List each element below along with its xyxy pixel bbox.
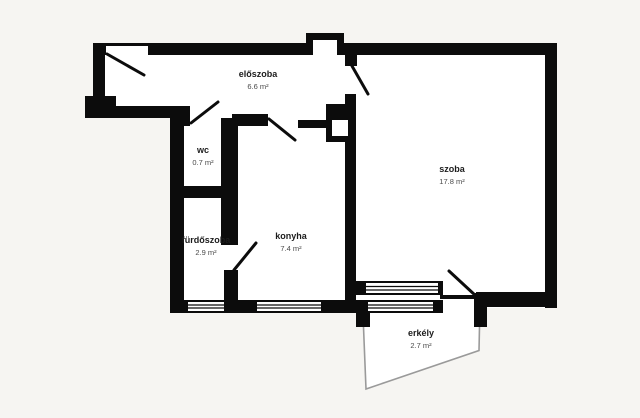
wall-segment xyxy=(170,112,184,313)
wall-segment xyxy=(337,33,344,55)
wall-segment xyxy=(298,120,328,128)
floor-plan-canvas: előszoba 6.6 m² wc 0.7 m² fürdőszoba 2.9… xyxy=(0,0,640,418)
szoba-area: 17.8 m² xyxy=(439,177,465,186)
shaft xyxy=(326,104,356,142)
balcony-pillar-left xyxy=(356,300,370,327)
floor-szoba xyxy=(345,43,557,308)
balcony-threshold xyxy=(440,295,478,299)
furdoszoba-label: fürdőszoba xyxy=(182,235,231,245)
eloszoba-area: 6.6 m² xyxy=(247,82,269,91)
niche-interior xyxy=(313,40,337,55)
erkely-label: erkély xyxy=(408,328,434,338)
wall-segment xyxy=(545,43,557,308)
wall-segment xyxy=(221,118,238,245)
floor-erkely xyxy=(363,313,480,389)
balcony-pillar-right xyxy=(474,293,487,327)
top-niche xyxy=(306,33,344,55)
wall-segment xyxy=(232,114,268,126)
erkely-area: 2.7 m² xyxy=(410,341,432,350)
window-room-balcony-outer xyxy=(366,283,438,293)
balcony-door-gap xyxy=(443,300,474,313)
floor-areas xyxy=(93,43,557,389)
eloszoba-label: előszoba xyxy=(239,69,279,79)
wc-area: 0.7 m² xyxy=(192,158,214,167)
entry-door-gap xyxy=(106,46,148,55)
floor-plan-drawing: előszoba 6.6 m² wc 0.7 m² fürdőszoba 2.9… xyxy=(0,0,640,418)
window-room-balcony-inner xyxy=(368,302,433,311)
konyha-label: konyha xyxy=(275,231,308,241)
shaft-inner xyxy=(332,120,348,136)
floor-konyha xyxy=(221,112,356,313)
wc-label: wc xyxy=(196,145,209,155)
szoba-label: szoba xyxy=(439,164,466,174)
konyha-area: 7.4 m² xyxy=(280,244,302,253)
window-kitchen xyxy=(257,302,321,311)
furdoszoba-area: 2.9 m² xyxy=(195,248,217,257)
wall-segment xyxy=(170,186,238,198)
window-bathroom xyxy=(188,302,224,311)
wall-segment xyxy=(476,292,557,307)
wall-segment xyxy=(345,50,357,66)
